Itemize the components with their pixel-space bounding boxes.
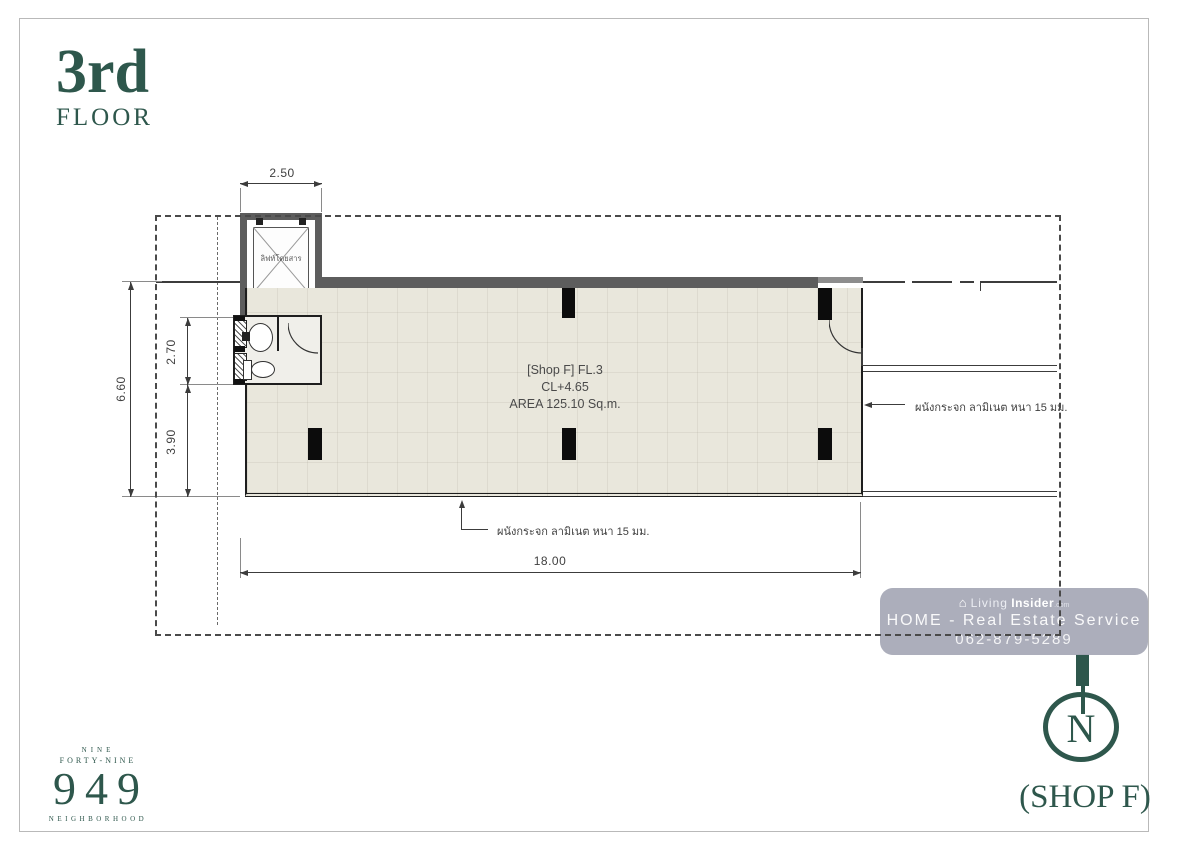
dim-line-top (240, 183, 322, 184)
leader-line (461, 529, 488, 530)
brand-logo-949: NINE FORTY-NINE 949 NEIGHBORHOOD (36, 746, 160, 823)
toilet-bowl (251, 361, 275, 378)
sink-tap (242, 332, 250, 341)
watermark: ⌂Living Insider.com HOME - Real Estate S… (880, 588, 1148, 655)
ext-line (240, 188, 241, 212)
ext-line (321, 188, 322, 212)
dim-arrow (185, 377, 191, 385)
corridor-top-line (960, 281, 974, 283)
watermark-service-line: HOME - Real Estate Service (887, 612, 1142, 630)
dim-line-left-upper (187, 318, 188, 385)
page-title: 3rd FLOOR (56, 42, 153, 132)
door-header (818, 277, 863, 283)
compass-north-letter: N (1067, 709, 1096, 749)
floor-word: FLOOR (56, 104, 153, 132)
corridor-jamb (980, 281, 981, 291)
column (562, 288, 575, 318)
logo-line-nine: NINE (36, 746, 160, 754)
sink (248, 323, 273, 352)
unit-name: [Shop F] FL.3 (440, 362, 690, 379)
logo-line-neighborhood: NEIGHBORHOOD (36, 815, 160, 823)
column (818, 428, 832, 460)
door-side-wall (861, 348, 863, 366)
dim-arrow (185, 489, 191, 497)
dim-line-bottom (240, 572, 861, 573)
dim-arrow (240, 181, 248, 187)
bathroom-door-arc (288, 323, 319, 354)
wall-cap (234, 316, 245, 321)
dim-line-left-lower (187, 385, 188, 497)
unit-label: [Shop F] FL.3 CL+4.65 AREA 125.10 Sq.m. (440, 362, 690, 413)
corridor-wall-left (156, 281, 240, 283)
watermark-brand-bold: Insider (1011, 596, 1054, 610)
logo-number: 949 (42, 766, 160, 812)
north-compass: N (1040, 652, 1124, 764)
entrance-door-arc (829, 320, 863, 354)
wall-cap (234, 346, 245, 352)
dim-arrow (128, 489, 134, 497)
dim-bottom-value: 18.00 (520, 554, 580, 568)
corridor-mid-line (863, 371, 1057, 372)
right-wall-annotation: ผนังกระจก ลามิเนต หนา 15 มม. (915, 398, 1067, 416)
floorplan-page: 3rd FLOOR ลิฟท์โดยสาร PARKING NEXIEZ P11… (0, 0, 1200, 849)
elevator-door-jamb-right (299, 218, 306, 225)
dim-arrow (185, 318, 191, 326)
ext-line (860, 502, 861, 578)
bathroom-partition (277, 317, 279, 351)
corridor-bottom-line (863, 491, 1057, 492)
leader-line (870, 404, 905, 405)
dim-arrow (314, 181, 322, 187)
unit-area: AREA 125.10 Sq.m. (440, 396, 690, 413)
corridor-mid-line (863, 365, 1057, 366)
shop-top-wall (316, 277, 818, 288)
elevator-car-label: ลิฟท์โดยสาร (253, 253, 309, 265)
leader-arrow (864, 402, 872, 408)
dim-left-upper-value: 2.70 (164, 332, 178, 372)
compass-circle: N (1043, 692, 1119, 762)
column (818, 288, 832, 320)
bottom-wall-annotation: ผนังกระจก ลามิเนต หนา 15 มม. (497, 522, 649, 540)
dim-line-left-total (130, 282, 131, 497)
column (562, 428, 576, 460)
shop-caption: (SHOP F) (1000, 779, 1170, 816)
corridor-top-line (980, 281, 1057, 283)
dim-left-lower-value: 3.90 (164, 422, 178, 462)
dim-arrow (853, 570, 861, 576)
centerline (217, 217, 218, 625)
dim-left-total-value: 6.60 (114, 369, 128, 409)
leader-arrow (459, 500, 465, 508)
corridor-bottom-line (863, 496, 1057, 497)
corridor-top-line (863, 281, 905, 283)
ext-line (122, 496, 240, 497)
floor-number: 3rd (56, 42, 153, 102)
dim-arrow (185, 385, 191, 393)
corridor-top-line (912, 281, 952, 283)
bathroom (233, 315, 322, 385)
watermark-phone: 062-879-5289 (955, 631, 1072, 648)
living-insider-house-icon: ⌂ (959, 595, 967, 610)
dim-arrow (240, 570, 248, 576)
unit-ceiling-height: CL+4.65 (440, 379, 690, 396)
watermark-brand-light: Living (971, 596, 1008, 610)
compass-needle-icon (1076, 654, 1089, 686)
column (308, 428, 322, 460)
watermark-brand-tld: .com (1054, 602, 1069, 609)
elevator-door-jamb-left (256, 218, 263, 225)
dim-top-value: 2.50 (262, 166, 302, 180)
leader-line (461, 506, 462, 529)
dim-arrow (128, 282, 134, 290)
